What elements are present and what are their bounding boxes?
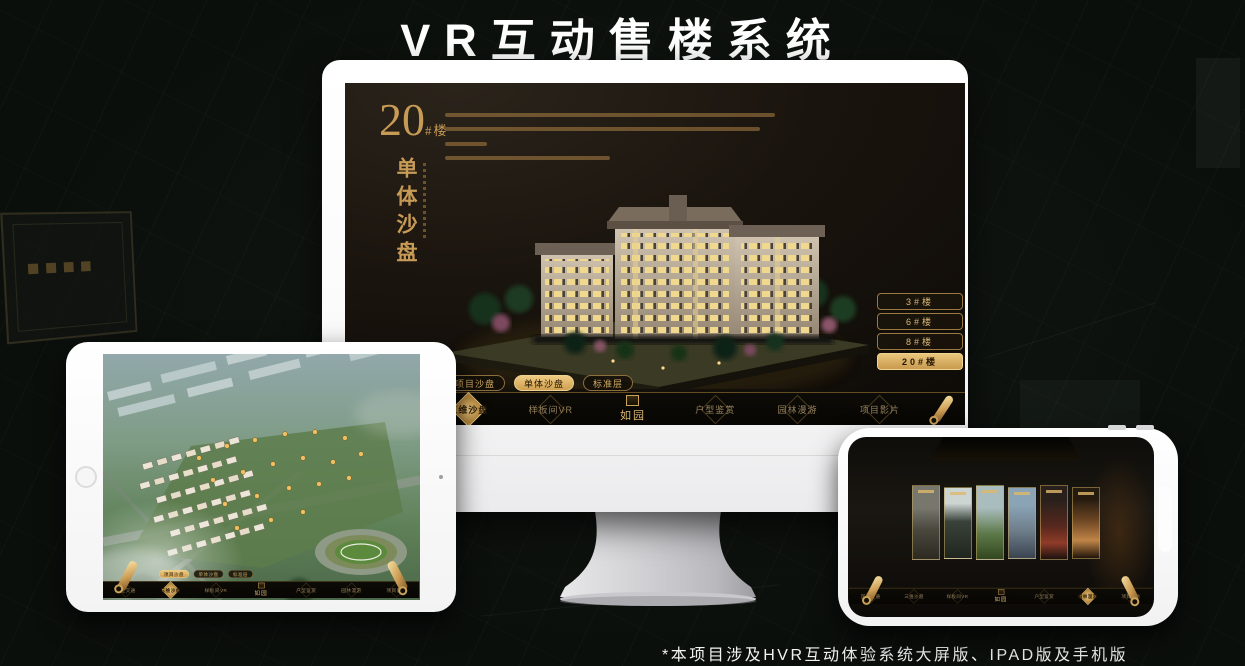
description-line [445, 113, 775, 117]
page: VR互动售楼系统 20#楼 单体沙盘 [0, 0, 1245, 666]
floor-button[interactable]: 8#楼 [877, 333, 963, 350]
subtab-project-sandbox[interactable]: 项目沙盘 [159, 570, 189, 578]
tablet-screen: 项目沙盘 单体沙盘 标准层 区位交通 三维沙盘 样板间VR 如园 户型鉴赏 园林… [103, 354, 420, 600]
floor-button[interactable]: 6#楼 [877, 313, 963, 330]
building-number: 20#楼 [379, 97, 449, 143]
nav-item-3d-sandbox[interactable]: 三维沙盘 [148, 582, 193, 598]
tablet-device: 项目沙盘 单体沙盘 标准层 区位交通 三维沙盘 样板间VR 如园 户型鉴赏 园林… [66, 342, 456, 612]
phone-volume-button[interactable] [1108, 425, 1126, 430]
subtab-standard-floor[interactable]: 标准层 [228, 570, 253, 578]
floor-button-active[interactable]: 20#楼 [877, 353, 963, 370]
description-line [445, 127, 760, 131]
nav-item-floorplans[interactable]: 户型鉴赏 [1023, 588, 1066, 604]
description-line [445, 142, 487, 146]
section-title: 单体沙盘 [391, 157, 421, 269]
gallery-card[interactable] [944, 487, 972, 559]
monitor-stand [557, 511, 759, 607]
nav-item-3d-sandbox[interactable]: 三维沙盘 [892, 588, 935, 604]
gallery-card[interactable] [1040, 485, 1068, 560]
phone-screen: 区位交通 三维沙盘 样板间VR 如园 户型鉴赏 园林漫游 项目影片 [848, 437, 1154, 617]
tablet-camera [439, 475, 443, 479]
gallery-card[interactable] [1008, 487, 1036, 559]
nav-item-garden-tour[interactable]: 园林漫游 [1066, 588, 1109, 604]
gallery-card[interactable] [976, 485, 1004, 560]
brand-logo[interactable]: 如园 [979, 588, 1022, 604]
subtab-single-sandbox[interactable]: 单体沙盘 [514, 375, 574, 391]
floor-button[interactable]: 3#楼 [877, 293, 963, 310]
seal-icon [998, 589, 1004, 594]
gallery-card[interactable] [912, 485, 940, 560]
floor-button-group: 3#楼 6#楼 8#楼 20#楼 [877, 293, 963, 373]
footnote: *本项目涉及HVR互动体验系统大屏版、IPAD版及手机版 [662, 641, 1128, 665]
tablet-navbar: 区位交通 三维沙盘 样板间VR 如园 户型鉴赏 园林漫游 项目影片 [103, 581, 419, 598]
nav-item-garden-tour[interactable]: 园林漫游 [329, 582, 374, 598]
nav-item-floorplans[interactable]: 户型鉴赏 [674, 393, 756, 425]
nav-item-floorplans[interactable]: 户型鉴赏 [284, 582, 329, 598]
phone-notch [1158, 486, 1172, 552]
monitor-subtabs: 项目沙盘 单体沙盘 标准层 [445, 375, 642, 391]
seal-icon [258, 583, 265, 589]
background-plaque [0, 211, 137, 344]
phone-navbar: 区位交通 三维沙盘 样板间VR 如园 户型鉴赏 园林漫游 项目影片 [849, 588, 1153, 604]
phone-volume-button[interactable] [1136, 425, 1154, 430]
phone-device: 区位交通 三维沙盘 样板间VR 如园 户型鉴赏 园林漫游 项目影片 [838, 428, 1178, 626]
tablet-subtabs: 项目沙盘 单体沙盘 标准层 [159, 570, 258, 578]
seal-icon [626, 395, 639, 406]
nav-item-garden-tour[interactable]: 园林漫游 [756, 393, 838, 425]
scroll-page-ornament[interactable] [931, 394, 954, 424]
building-3d-render [423, 157, 885, 389]
subtab-single-sandbox[interactable]: 单体沙盘 [194, 570, 224, 578]
brand-logo[interactable]: 如园 [592, 393, 674, 425]
courtyard-roof [931, 437, 1081, 461]
map-fragment [1196, 58, 1240, 168]
subtab-standard-floor[interactable]: 标准层 [583, 375, 633, 391]
nav-item-showroom-vr[interactable]: 样板间VR [510, 393, 592, 425]
nav-item-showroom-vr[interactable]: 样板间VR [936, 588, 979, 604]
brand-logo[interactable]: 如园 [239, 582, 284, 598]
gallery-card[interactable] [1072, 487, 1100, 559]
nav-item-showroom-vr[interactable]: 样板间VR [193, 582, 238, 598]
tablet-home-button[interactable] [75, 466, 97, 488]
nav-item-project-film[interactable]: 项目影片 [839, 393, 921, 425]
